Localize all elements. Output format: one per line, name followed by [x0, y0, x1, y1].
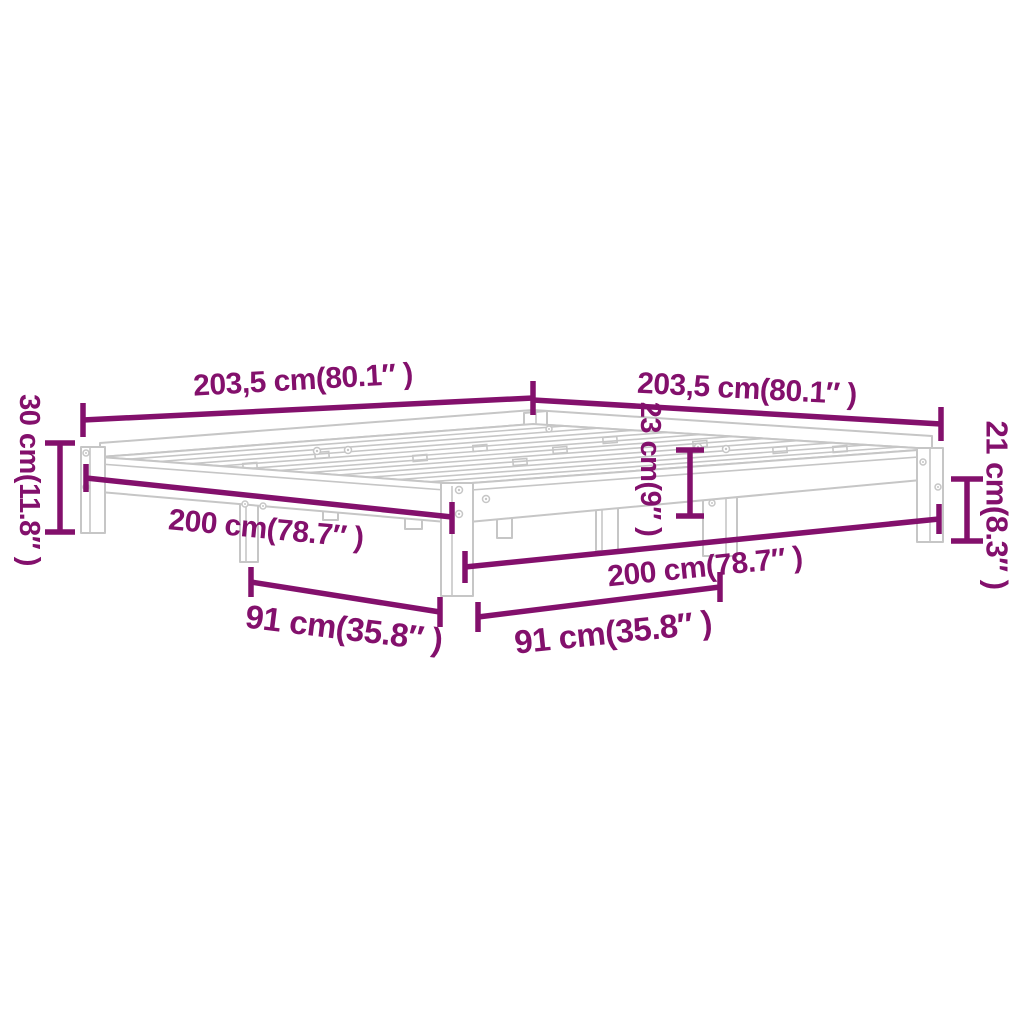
label-height-middle: 23 cm(9″ ): [634, 402, 666, 537]
label-height-right: 21 cm(8.3″ ): [980, 420, 1015, 589]
dimension-diagram-canvas: 203,5 cm(80.1″ ) 203,5 cm(80.1″ ) 30 cm(…: [0, 0, 1024, 1024]
label-total-length-left: 203,5 cm(80.1″ ): [192, 357, 413, 402]
near-corner-leg: [441, 483, 473, 596]
bed-frame-dimension-figure: 203,5 cm(80.1″ ) 203,5 cm(80.1″ ) 30 cm(…: [0, 0, 1024, 1024]
label-total-length-right: 203,5 cm(80.1″ ): [636, 367, 857, 411]
label-leg-span-right: 91 cm(35.8″ ): [512, 603, 713, 661]
dim-height-right: [951, 479, 983, 541]
label-height-left: 30 cm(11.8″ ): [13, 394, 45, 566]
dim-height-left: [45, 443, 75, 532]
bed-frame-drawing: [81, 410, 943, 596]
